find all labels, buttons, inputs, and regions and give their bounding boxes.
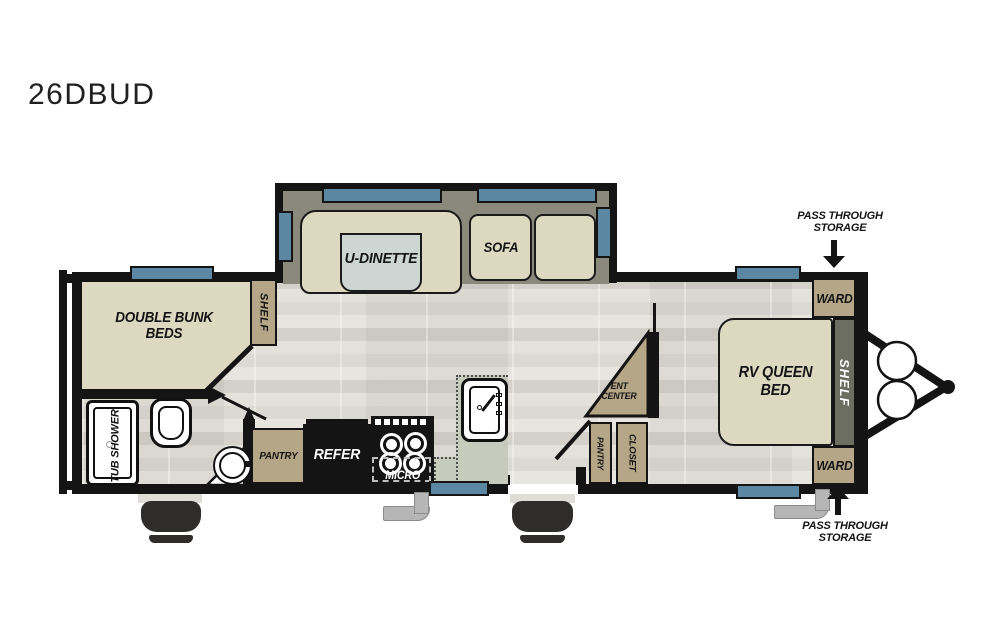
bunk-shelf-cabinet: SHELF xyxy=(250,279,277,346)
kitchen-sink-knob xyxy=(496,393,502,397)
hitch-ball xyxy=(941,380,955,394)
tub-shower-label: TUB SHOWER xyxy=(110,409,122,482)
kitchen-pantry: PANTRY xyxy=(251,428,305,484)
window-kitchen-bottom xyxy=(429,481,489,496)
kitchen-pantry-label: PANTRY xyxy=(259,450,297,462)
bedroom-pantry-label: PANTRY xyxy=(596,437,606,470)
kitchen-sink-knob xyxy=(496,402,502,406)
propane-tank-top xyxy=(878,342,916,380)
bedroom-wall xyxy=(648,332,659,418)
stove: MICRO xyxy=(371,416,434,485)
entry-step-left-post xyxy=(414,492,429,514)
window-bunk-top xyxy=(130,266,214,281)
wardrobe-bottom: WARD xyxy=(812,446,856,485)
window-slide-right xyxy=(596,207,612,258)
wheel-left xyxy=(141,501,201,532)
tub-shower: TUB SHOWER xyxy=(86,400,139,486)
kitchen-sink xyxy=(461,378,508,442)
ent-center-label-line2: CENTER xyxy=(601,392,636,402)
kitchen-sink-drain xyxy=(477,405,482,410)
bedroom-pantry: PANTRY xyxy=(589,422,612,484)
stove-control-panel xyxy=(375,419,430,426)
bedroom-half-wall xyxy=(653,303,656,337)
rear-wall xyxy=(72,272,82,494)
bed-shelf-label: SHELF xyxy=(837,359,852,407)
entry-door-jamb-right xyxy=(576,467,586,485)
bathroom-wall xyxy=(82,389,208,399)
refrigerator: REFER xyxy=(303,424,371,484)
pass-through-bottom-line2: STORAGE xyxy=(819,532,872,544)
window-bed-top xyxy=(735,266,801,281)
bath-sink-basin xyxy=(219,452,246,479)
bathroom-door-swing xyxy=(222,397,266,419)
wardrobe-bottom-label: WARD xyxy=(816,458,852,473)
sofa-cushion-right xyxy=(534,214,596,281)
kitchen-sink-knob xyxy=(496,411,502,415)
toilet xyxy=(150,398,192,448)
kitchen-counter xyxy=(434,457,458,484)
pass-through-top-line1: PASS THROUGH xyxy=(797,210,882,222)
entry-door-swing xyxy=(556,421,590,459)
wheel-left-shadow xyxy=(149,535,193,543)
wheel-right-shadow xyxy=(520,535,565,543)
bunk-beds-label: DOUBLE BUNK BEDS xyxy=(95,316,233,336)
floorplan-page: 26DBUD U- xyxy=(0,0,1000,642)
sofa-label: SOFA xyxy=(473,238,529,256)
propane-tank-bottom xyxy=(878,381,916,419)
front-wall xyxy=(856,272,868,494)
pass-through-bottom-line1: PASS THROUGH xyxy=(802,520,887,532)
window-slide-top-left xyxy=(322,187,442,203)
wheel-right xyxy=(512,501,573,532)
window-slide-top-right xyxy=(477,187,597,203)
bath-sink xyxy=(213,446,252,485)
microwave-label: MICRO xyxy=(385,470,420,482)
wardrobe-top-label: WARD xyxy=(816,291,852,306)
closet-label: CLOSET xyxy=(627,434,638,471)
closet: CLOSET xyxy=(616,422,648,484)
window-bed-bottom xyxy=(736,484,801,499)
u-dinette-label: U-DINETTE xyxy=(334,248,429,268)
rv-queen-bed-label: RV QUEEN BED xyxy=(724,364,827,400)
bunk-shelf-label: SHELF xyxy=(258,293,270,332)
pass-through-top-line2: STORAGE xyxy=(814,222,867,234)
bed-shelf: SHELF xyxy=(833,318,856,447)
wardrobe-top: WARD xyxy=(812,278,856,318)
window-slide-left xyxy=(277,211,293,262)
refrigerator-label: REFER xyxy=(314,446,360,463)
bath-wall-endcap xyxy=(208,386,226,404)
rv-queen-bed: RV QUEEN BED xyxy=(718,318,833,446)
rear-bumper xyxy=(59,270,67,494)
toilet-bowl xyxy=(158,406,184,440)
